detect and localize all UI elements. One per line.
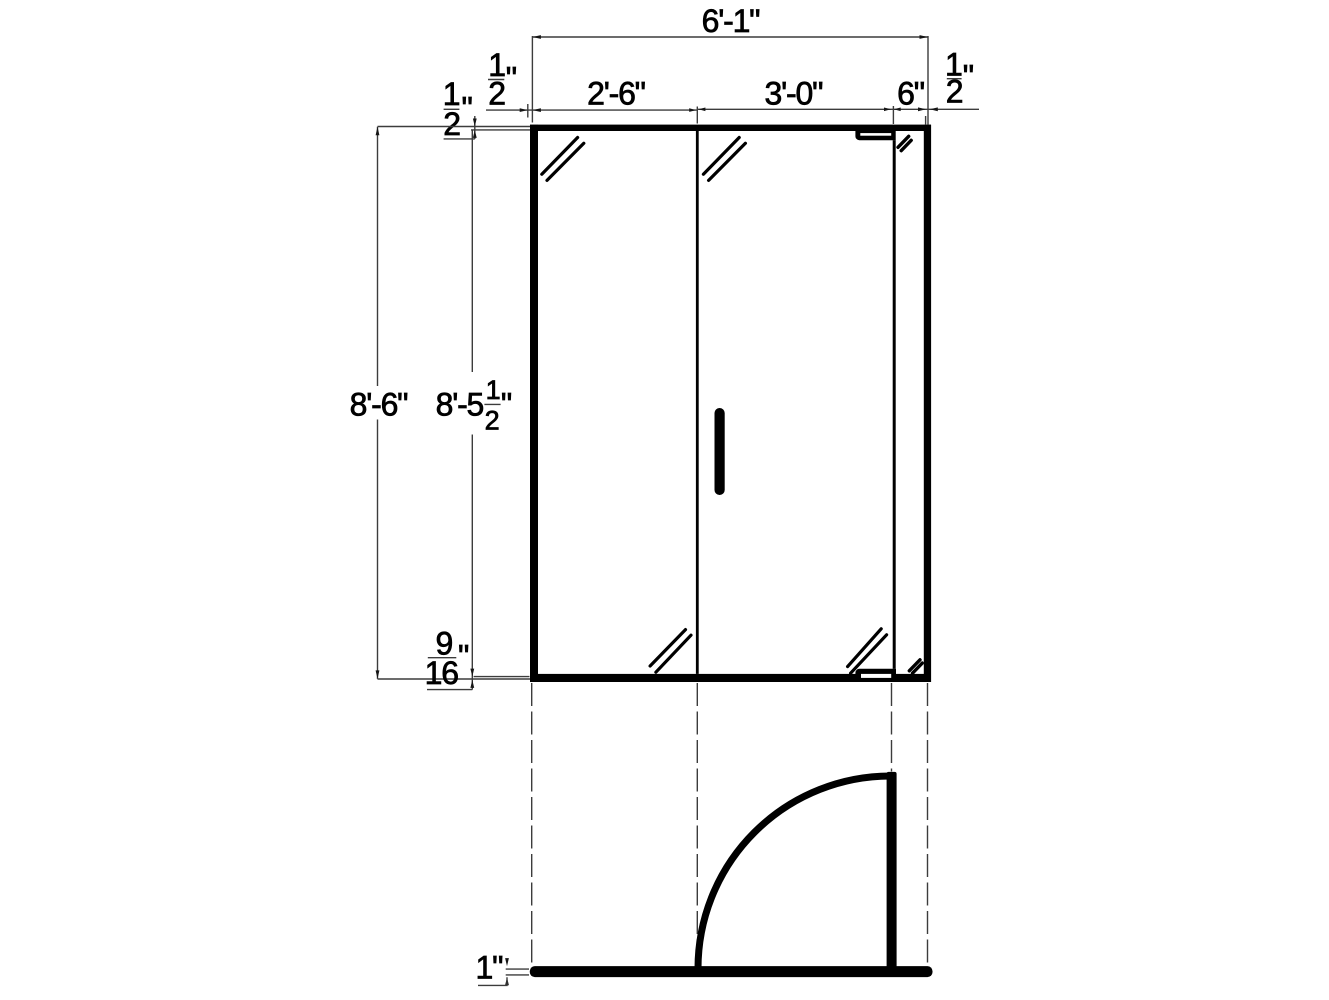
- svg-text:": ": [458, 639, 468, 675]
- svg-text:2: 2: [443, 106, 460, 142]
- svg-text:8'-5: 8'-5: [436, 386, 484, 422]
- svg-text:1": 1": [476, 950, 503, 986]
- svg-text:2: 2: [946, 74, 963, 110]
- svg-text:2'-6": 2'-6": [587, 76, 645, 112]
- svg-text:": ": [501, 386, 511, 422]
- svg-text:6": 6": [897, 76, 924, 112]
- svg-text:2: 2: [488, 76, 505, 112]
- svg-text:2: 2: [485, 406, 499, 436]
- svg-text:16: 16: [425, 655, 459, 691]
- svg-text:3'-0": 3'-0": [765, 76, 823, 112]
- svg-text:": ": [462, 90, 472, 126]
- svg-text:1: 1: [486, 375, 500, 405]
- svg-text:": ": [963, 59, 973, 95]
- svg-text:8'-6": 8'-6": [350, 386, 408, 422]
- svg-text:6'-1": 6'-1": [702, 3, 760, 39]
- svg-text:": ": [506, 61, 516, 97]
